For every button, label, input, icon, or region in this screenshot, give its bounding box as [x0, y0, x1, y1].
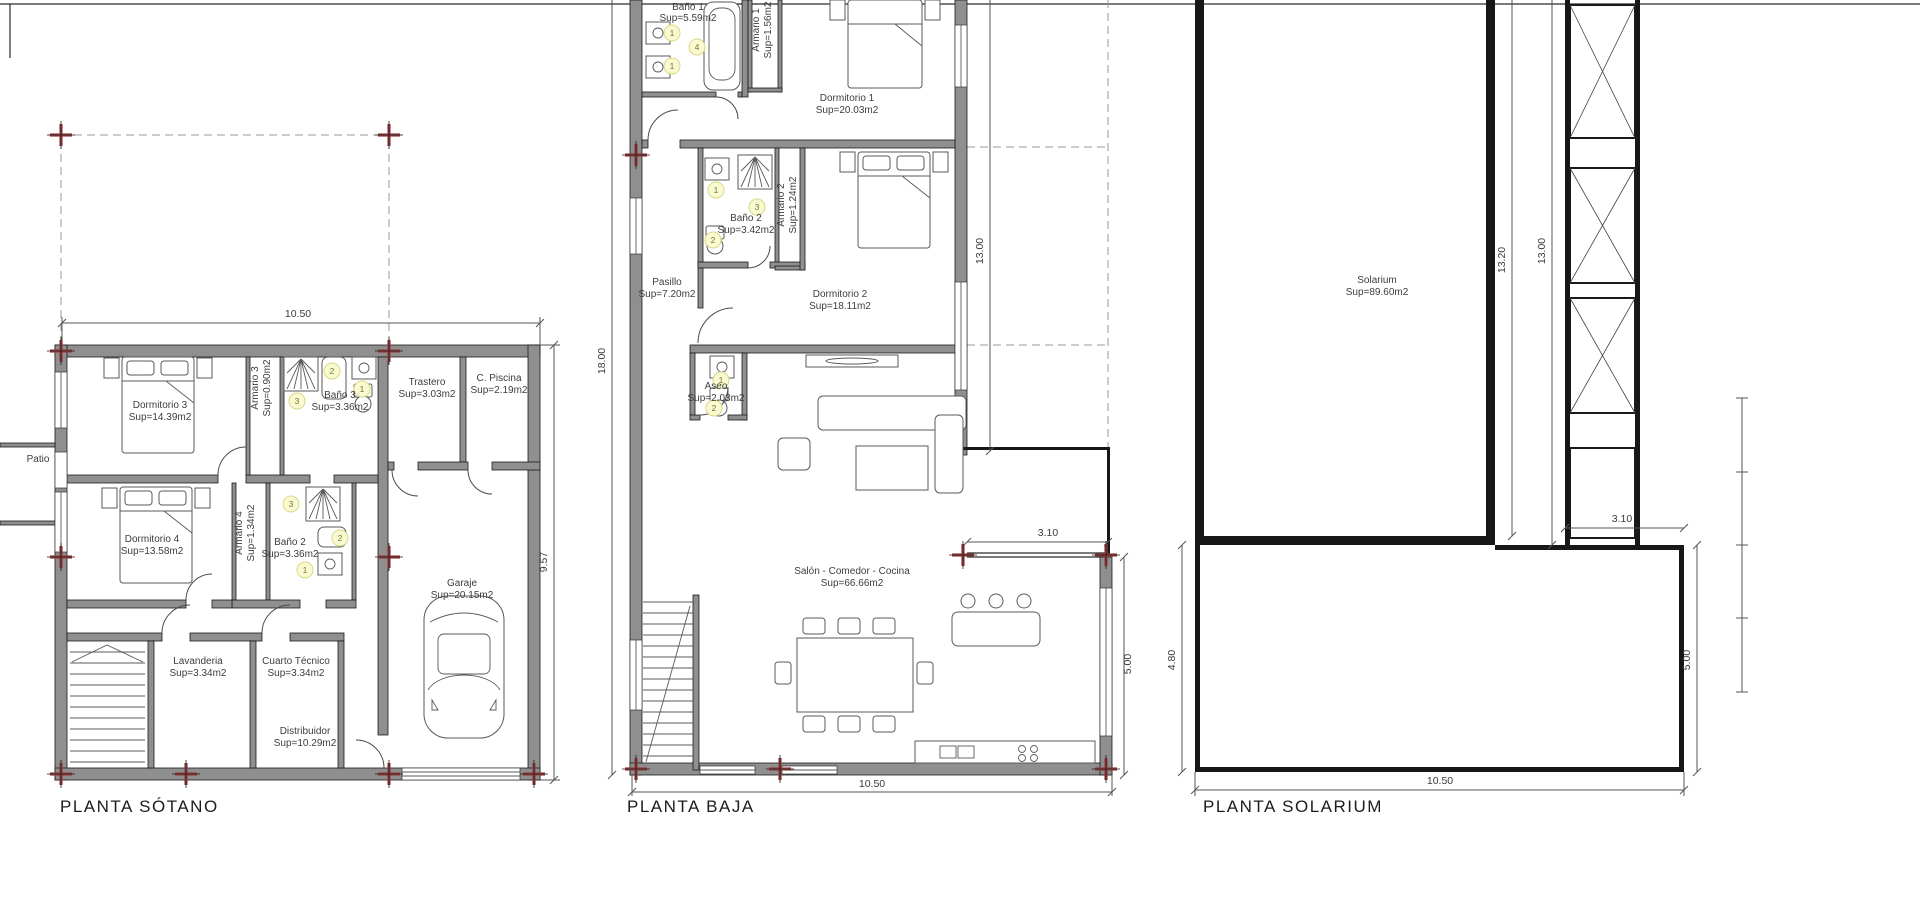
- plan-sotano: 10.50 9.57 2 1 3 3 2 1 Patio Dormitorio …: [0, 121, 560, 816]
- floor-plan-sheet: 10.50 9.57 2 1 3 3 2 1 Patio Dormitorio …: [0, 0, 1920, 920]
- label-bano3: Baño 3: [324, 390, 356, 401]
- marker: 1: [360, 384, 365, 394]
- label-solarium: Solarium: [1357, 275, 1396, 286]
- label-dormitorio3: Dormitorio 3: [133, 400, 188, 411]
- label-armario2-sup: Sup=1.24m2: [788, 176, 799, 233]
- kitchen-counter: [915, 741, 1095, 763]
- title-planta-sotano: PLANTA SÓTANO: [60, 797, 219, 816]
- dining-set: [775, 618, 933, 732]
- dim-solarium-bottom: 10.50: [1427, 775, 1453, 787]
- label-armario4: Armario 4: [234, 511, 245, 555]
- label-armario4-sup: Sup=1.34m2: [246, 504, 257, 561]
- marker: 1: [303, 565, 308, 575]
- sofa-group: [778, 396, 966, 493]
- title-planta-solarium: PLANTA SOLARIUM: [1203, 797, 1383, 816]
- label-bano2-sotano-sup: Sup=3.36m2: [262, 549, 319, 560]
- dim-solarium-terrace-width: 3.10: [1612, 513, 1633, 525]
- marker: 3: [295, 396, 300, 406]
- label-cpiscina: C. Piscina: [476, 373, 521, 384]
- stairs-sotano: [70, 645, 145, 762]
- marker: 2: [338, 533, 343, 543]
- label-armario1-sup: Sup=1.56m2: [763, 1, 774, 58]
- title-planta-baja: PLANTA BAJA: [627, 797, 755, 816]
- bed-dormitorio2: [840, 152, 948, 248]
- marker: 3: [755, 202, 760, 212]
- label-bano2-baja-sup: Sup=3.42m2: [718, 225, 775, 236]
- dim-baja-terrace: 3.10: [1038, 527, 1059, 539]
- dim-baja-left: 18.00: [596, 348, 608, 374]
- marker: 4: [695, 42, 700, 52]
- label-bano1-sup: Sup=5.59m2: [660, 13, 717, 24]
- dim-baja-right-upper: 13.00: [974, 238, 986, 264]
- marker: 2: [330, 366, 335, 376]
- marker: 2: [711, 235, 716, 245]
- car: [424, 596, 504, 738]
- label-bano2-baja: Baño 2: [730, 213, 762, 224]
- label-armario3-sup: Sup=0.90m2: [262, 359, 273, 416]
- sheet-edge-ticks: [1736, 398, 1748, 692]
- label-bano2-sotano: Baño 2: [274, 537, 306, 548]
- marker: 1: [670, 61, 675, 71]
- label-dormitorio1-sup: Sup=20.03m2: [816, 105, 879, 116]
- marker: 1: [714, 185, 719, 195]
- label-garaje: Garaje: [447, 578, 477, 589]
- grid-lines: [48, 135, 402, 345]
- label-lavanderia-sup: Sup=3.34m2: [170, 668, 227, 679]
- floor-plan-drawing: 10.50 9.57 2 1 3 3 2 1 Patio Dormitorio …: [0, 0, 1920, 920]
- dim-baja-right-lower: 5.00: [1122, 654, 1134, 675]
- label-pasillo: Pasillo: [652, 277, 682, 288]
- label-pasillo-sup: Sup=7.20m2: [639, 289, 696, 300]
- label-solarium-sup: Sup=89.60m2: [1346, 287, 1409, 298]
- bed-dormitorio1: [830, 0, 940, 88]
- label-cpiscina-sup: Sup=2.19m2: [471, 385, 528, 396]
- dim-solarium-terrace-left: 4.80: [1166, 650, 1178, 671]
- label-garaje-sup: Sup=20.15m2: [431, 590, 494, 601]
- room-labels-solarium: Solarium Sup=89.60m2: [1346, 275, 1409, 298]
- grid-lines-baja: [967, 0, 1108, 447]
- label-armario1: Armario 1: [751, 8, 762, 52]
- label-cuartotecnico-sup: Sup=3.34m2: [268, 668, 325, 679]
- kitchen-island: [952, 594, 1040, 646]
- label-aseo: Aseo: [705, 381, 728, 392]
- label-patio: Patio: [27, 454, 50, 465]
- label-armario2: Armario 2: [776, 183, 787, 227]
- label-dormitorio2: Dormitorio 2: [813, 289, 868, 300]
- label-salon-sup: Sup=66.66m2: [821, 578, 884, 589]
- label-trastero-sup: Sup=3.03m2: [399, 389, 456, 400]
- dim-solarium-tower-height: 13.00: [1536, 238, 1548, 264]
- stairs-baja: [643, 602, 693, 762]
- label-dormitorio3-sup: Sup=14.39m2: [129, 412, 192, 423]
- dim-solarium-terrace-right: 5.00: [1681, 650, 1693, 671]
- label-trastero: Trastero: [409, 377, 446, 388]
- label-aseo-sup: Sup=2.03m2: [688, 393, 745, 404]
- dim-sotano-height: 9.57: [538, 552, 550, 573]
- tv-unit: [806, 355, 898, 367]
- marker: 2: [712, 403, 717, 413]
- plan-baja: 18.00 13.00 3.10 5.00 10.50 1 1 4 1 3 2 …: [596, 0, 1134, 816]
- shaft-boxes: [1570, 5, 1635, 538]
- label-bano3-sup: Sup=3.36m2: [312, 402, 369, 413]
- label-dormitorio4-sup: Sup=13.58m2: [121, 546, 184, 557]
- label-cuartotecnico: Cuarto Técnico: [262, 656, 330, 667]
- plan-solarium: 13.20 13.00 3.10 4.80 5.00 10.50 Solariu…: [1166, 0, 1701, 816]
- dim-sotano-width: 10.50: [285, 308, 311, 320]
- label-dormitorio1: Dormitorio 1: [820, 93, 875, 104]
- walls-solarium: [1195, 0, 1684, 772]
- label-dormitorio2-sup: Sup=18.11m2: [809, 301, 871, 312]
- label-distribuidor-sup: Sup=10.29m2: [274, 738, 337, 749]
- marker: 3: [289, 499, 294, 509]
- label-bano1: Baño 1: [672, 2, 704, 13]
- dim-solarium-main-height: 13.20: [1496, 247, 1508, 273]
- marker: 1: [670, 28, 675, 38]
- label-armario3: Armario 3: [250, 366, 261, 410]
- label-lavanderia: Lavanderia: [173, 656, 223, 667]
- label-dormitorio4: Dormitorio 4: [125, 534, 180, 545]
- dimensions-solarium: 13.20 13.00 3.10 4.80 5.00 10.50: [1166, 0, 1701, 796]
- label-salon: Salón - Comedor - Cocina: [794, 566, 910, 577]
- dim-baja-bottom: 10.50: [859, 778, 885, 790]
- label-distribuidor: Distribuidor: [280, 726, 331, 737]
